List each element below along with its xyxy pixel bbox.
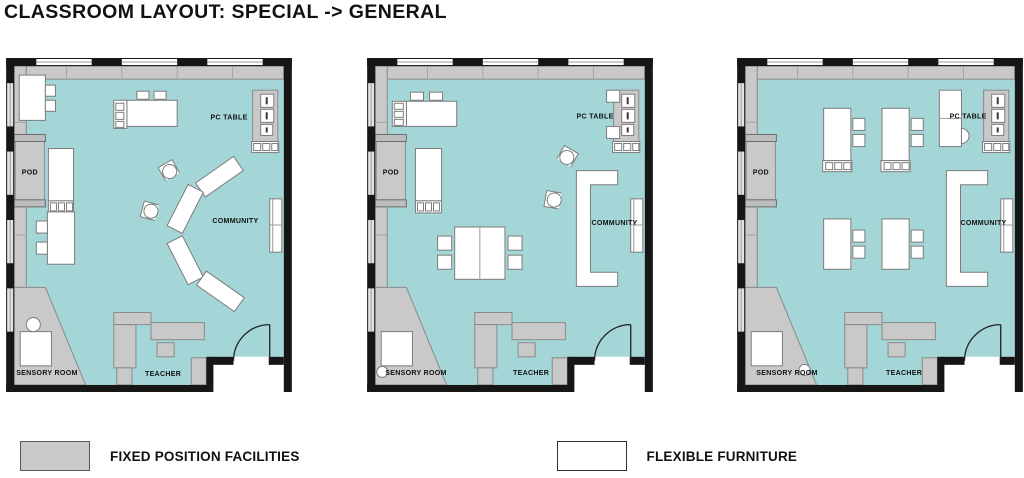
- pod-label: POD: [753, 170, 769, 177]
- sensory-room-label: SENSORY ROOM: [16, 370, 77, 377]
- flexible-furniture-label: FLEXIBLE FURNITURE: [647, 449, 798, 464]
- pc-table-label: PC TABLE: [950, 113, 987, 120]
- pod-side-table: [415, 149, 441, 213]
- pc-chair: [607, 90, 620, 102]
- fixed-facilities-label: FIXED POSITION FACILITIES: [110, 449, 300, 464]
- community-label: COMMUNITY: [591, 220, 637, 227]
- teacher-label: TEACHER: [886, 370, 922, 377]
- floor-plan-middle: POD PC TABLE COMMUNITY SENSORY ROOM TEAC…: [367, 58, 653, 392]
- community-label: COMMUNITY: [960, 220, 1006, 227]
- flexible-furniture-swatch: [557, 441, 627, 471]
- corner-desk: [19, 75, 45, 120]
- sensory-stool: [26, 318, 40, 332]
- community-label: COMMUNITY: [212, 218, 258, 225]
- page-title: CLASSROOM LAYOUT: SPECIAL -> GENERAL: [4, 1, 447, 24]
- teacher-label: TEACHER: [145, 371, 181, 378]
- sensory-room-label: SENSORY ROOM: [385, 370, 446, 377]
- sensory-room-label: SENSORY ROOM: [756, 370, 817, 377]
- pod-label: POD: [383, 170, 399, 177]
- floor-plan-special: POD PC TABLE COMMUNITY SENSORY ROOM TEAC…: [6, 58, 292, 392]
- pod-label: POD: [22, 170, 38, 177]
- fixed-facilities-swatch: [20, 441, 90, 471]
- pc-table-label: PC TABLE: [577, 113, 614, 120]
- pod-side-table: [48, 149, 73, 213]
- legend: FIXED POSITION FACILITIES FLEXIBLE FURNI…: [20, 441, 797, 471]
- floor-plan-general: POD PC TABLE COMMUNITY SENSORY ROOM TEAC…: [737, 58, 1023, 392]
- teacher-label: TEACHER: [513, 370, 549, 377]
- classroom-layout-diagram: CLASSROOM LAYOUT: SPECIAL -> GENERAL: [0, 0, 1024, 478]
- pc-table-label: PC TABLE: [211, 114, 248, 121]
- pc-chair: [607, 126, 620, 138]
